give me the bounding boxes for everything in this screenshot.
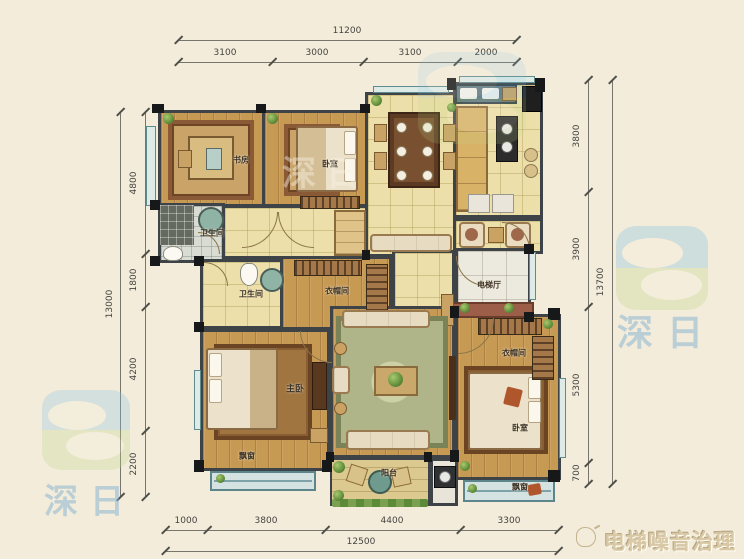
bedroom2-pillow (528, 377, 541, 399)
plant (468, 484, 477, 493)
wall-post (360, 104, 370, 113)
room-label-cloakroom-2: 衣帽间 (502, 348, 526, 359)
plate (396, 146, 407, 157)
doodle-icon (576, 527, 596, 547)
plate (422, 170, 433, 181)
plate (396, 122, 407, 133)
wardrobe (532, 336, 554, 380)
wall-post (194, 322, 204, 332)
equipment-dial (439, 471, 451, 483)
master-pillow (209, 379, 222, 403)
wall-post (194, 256, 204, 266)
watermark-brand: 深日 (44, 474, 136, 523)
wall-post (194, 460, 204, 472)
room-label-elevator-hall: 电梯厅 (477, 280, 501, 291)
wall-post (524, 244, 534, 254)
logo-s-curve (622, 238, 683, 268)
window (194, 370, 201, 430)
room-label-master: 主卧 (286, 382, 304, 395)
bay-sill-line (214, 480, 312, 482)
wall-post (150, 200, 160, 210)
logo-s-curve (641, 270, 702, 300)
bay-cushion (527, 483, 542, 496)
logo-s-curve (426, 65, 497, 98)
dim-bottom-seg: 3800 (255, 516, 278, 526)
dining-chair (374, 124, 387, 142)
room-label-bay-bedroom2: 飘窗 (512, 482, 528, 493)
dim-right-total: 13700 (596, 268, 606, 297)
kitchen-jar (524, 164, 538, 178)
armchair (332, 366, 350, 394)
dim-line (165, 530, 558, 531)
wall-post (424, 452, 432, 462)
logo-s-curve (447, 100, 518, 133)
wall-post (450, 306, 459, 318)
dim-left-seg: 2200 (129, 453, 139, 476)
plant (333, 461, 345, 473)
wall-post (152, 104, 164, 113)
window (529, 252, 536, 300)
plant (504, 303, 514, 313)
kitchen-jar (524, 148, 538, 162)
kitchen-mat (468, 194, 490, 213)
study-monitor (206, 148, 222, 170)
dim-left-seg: 4200 (129, 358, 139, 381)
dim-bottom-seg: 1000 (175, 516, 198, 526)
dim-right-seg: 5300 (572, 374, 582, 397)
watermark-logo (418, 52, 526, 144)
window (559, 378, 566, 458)
dim-right-seg: 700 (572, 464, 582, 481)
dim-bottom-total: 12500 (347, 537, 376, 547)
plant (543, 319, 553, 329)
sofa-bottom (346, 430, 430, 450)
master-stool (310, 428, 328, 443)
watermark-logo (42, 390, 130, 470)
watermark-brand-ghost: 深日 (282, 146, 370, 195)
toilet (163, 246, 183, 261)
master-blanket (250, 350, 276, 428)
wall-post (326, 452, 334, 462)
kitchen-mat (492, 194, 514, 213)
dim-right-seg: 3800 (572, 125, 582, 148)
wall-post (150, 256, 160, 266)
room-label-bay-master: 飘窗 (239, 451, 255, 462)
dining-chair (374, 152, 387, 170)
doodle-icon-line (594, 525, 600, 529)
toilet (240, 263, 258, 286)
dining-bench (370, 234, 452, 252)
plant (333, 490, 344, 501)
floor-plan-image: 书房 卧室 卫生间 卫生间 衣帽间 电梯厅 主卧 飘窗 阳台 衣帽间 卧室 飘窗… (0, 0, 744, 559)
wall-post (256, 104, 266, 113)
logo-s-curve (66, 432, 124, 461)
room-label-bedroom-2: 卧室 (512, 423, 528, 434)
dim-left-seg: 1800 (129, 269, 139, 292)
room-label-balcony: 阳台 (381, 468, 397, 479)
wall-post (535, 78, 545, 92)
dim-line (178, 40, 516, 41)
dim-top-total: 11200 (333, 26, 362, 36)
dim-bottom-seg: 3300 (498, 516, 521, 526)
balcony-planter (332, 499, 428, 507)
wall-post (548, 308, 560, 320)
window (146, 126, 156, 206)
bedroom2-pillow (528, 401, 541, 423)
wardrobe (294, 260, 362, 276)
dim-left-total: 13000 (105, 290, 115, 319)
logo-s-curve (48, 401, 106, 430)
plant (460, 461, 470, 471)
dim-right-seg: 3900 (572, 238, 582, 261)
master-dresser (312, 362, 327, 410)
plate (422, 146, 433, 157)
plate (396, 170, 407, 181)
plant (460, 303, 470, 313)
room-label-bathroom-1: 卫生间 (200, 228, 224, 239)
side-table (334, 342, 347, 355)
shower (160, 205, 194, 245)
master-pillow (209, 353, 222, 377)
dim-top-seg: 3100 (214, 48, 237, 58)
room-label-bathroom-2: 卫生间 (239, 289, 263, 300)
nook-cushion (465, 228, 478, 241)
room-label-cloakroom-1: 衣帽间 (325, 286, 349, 297)
plant (267, 113, 278, 124)
dim-line (165, 551, 558, 552)
washbasin (260, 268, 284, 292)
watermark-logo (616, 226, 708, 310)
dim-top-seg: 3000 (306, 48, 329, 58)
plant (163, 113, 174, 124)
study-chair (178, 150, 192, 168)
plant (216, 474, 225, 483)
wall-post (362, 250, 370, 260)
wall-post (548, 470, 560, 482)
wall-post (450, 450, 459, 462)
plant (371, 95, 382, 106)
watermark-brand: 深日 (617, 304, 717, 356)
plant (388, 372, 403, 387)
side-table (334, 402, 347, 415)
dining-chair (443, 152, 456, 170)
dim-line (588, 80, 589, 484)
dim-left-seg: 4800 (129, 172, 139, 195)
sofa-top (342, 310, 430, 328)
wall-post (524, 312, 534, 322)
dim-line (612, 80, 613, 484)
footer-watermark-text: 电梯噪音治理 (604, 526, 736, 556)
bedroom-top-cabinet (300, 196, 360, 209)
tv-cabinet (449, 356, 456, 420)
room-label-study: 书房 (233, 155, 249, 166)
dim-bottom-seg: 4400 (381, 516, 404, 526)
